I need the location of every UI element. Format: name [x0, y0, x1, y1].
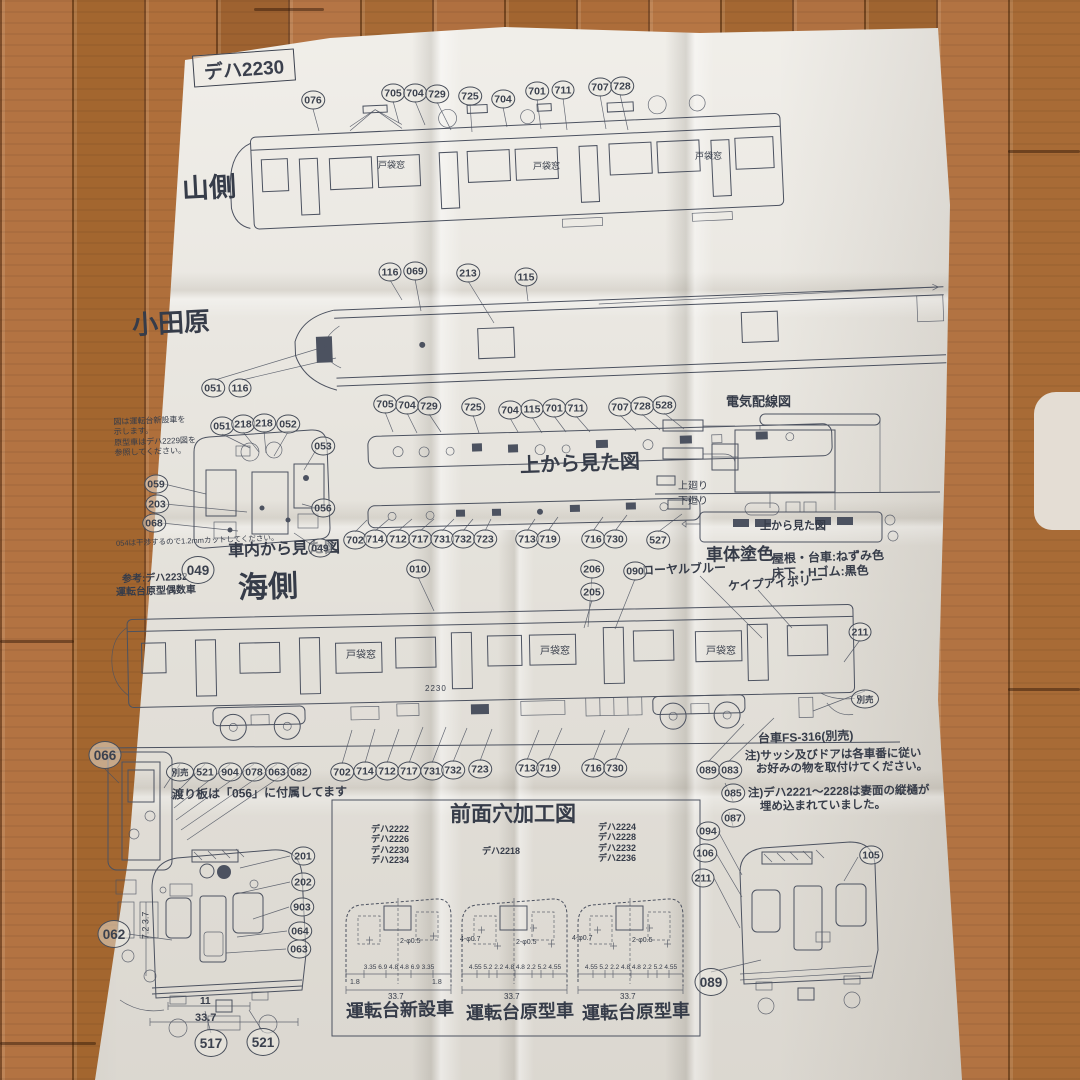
- part-circle: 711: [565, 399, 588, 418]
- part-circle: 066: [89, 741, 122, 769]
- dim-18: 1.8: [432, 979, 442, 987]
- part-circle: 517: [195, 1029, 228, 1057]
- model-item: デハ2234: [371, 855, 409, 865]
- part-circle: 105: [859, 846, 883, 865]
- part-circle: 052: [276, 415, 300, 434]
- part-circle: 203: [145, 495, 169, 514]
- part-circle: 051: [210, 417, 234, 436]
- part-circle: 218: [231, 415, 255, 434]
- watariita-note: 渡り板は「056」に付属してます: [172, 784, 347, 801]
- part-circle: 704: [395, 396, 419, 415]
- part-circle: 731: [420, 762, 444, 781]
- part-circle: 062: [98, 920, 131, 948]
- part-circle: 705: [381, 84, 405, 103]
- sea-side-elevation: [111, 604, 855, 743]
- hole-dim: 4-φ0.7: [460, 936, 481, 944]
- part-circle: 049: [182, 556, 215, 584]
- part-circle: 701: [542, 399, 566, 418]
- part-circle: 521: [193, 763, 217, 782]
- label-lower: 下廻り: [678, 496, 708, 508]
- part-circle: 116: [229, 379, 252, 398]
- part-circle: 707: [588, 78, 612, 97]
- model-item: デハ2228: [598, 832, 636, 842]
- label-door-pocket: 戸袋窓: [706, 646, 736, 658]
- part-circle: 049: [308, 539, 332, 558]
- part-circle: 730: [603, 530, 627, 549]
- label-top-view: 上から見た図: [520, 450, 641, 478]
- dim-18: 1.8: [350, 979, 360, 987]
- model-item: デハ2224: [598, 822, 636, 832]
- part-circle: 728: [610, 77, 634, 96]
- caption-orig-cab2: 運転台原型車: [582, 1001, 691, 1025]
- ref-note-line1: 参考:デハ2232: [122, 572, 188, 586]
- part-circle: 702: [330, 763, 354, 782]
- part-circle: 205: [580, 583, 604, 602]
- bogie-left: [213, 706, 306, 741]
- part-circle: 704: [491, 90, 515, 109]
- dim-row: 4.55 5.2 2.2 4.8 4.8 2.2 5.2 4.55: [462, 964, 568, 972]
- model-list-center: デハ2218: [482, 846, 520, 857]
- label-door-pocket: 戸袋窓: [346, 650, 376, 662]
- part-circle: 089: [696, 761, 720, 780]
- label-royal-blue: ローヤルブルー: [642, 561, 726, 578]
- hole-dim: 2-φ0.5: [632, 937, 653, 945]
- part-circle: 717: [408, 530, 432, 549]
- model-item: デハ2222: [371, 824, 409, 834]
- part-circle: 213: [456, 264, 480, 283]
- part-circle: 090: [623, 562, 647, 581]
- part-circle: 089: [695, 968, 728, 996]
- part-circle: 725: [461, 398, 485, 417]
- hole-dim: 2-φ0.5: [516, 939, 537, 947]
- part-circle: 211: [692, 869, 715, 888]
- part-circle: 903: [290, 898, 314, 917]
- part-circle: 717: [397, 762, 421, 781]
- part-circle: 716: [581, 530, 605, 549]
- part-circle: 521: [247, 1028, 280, 1056]
- sheet-content: デハ2230 山側 小田原 上から見た図 車内から見た図 海側 電気配線図 上廻…: [0, 0, 1080, 1080]
- part-circle: 082: [287, 763, 311, 782]
- part-circle: 528: [652, 396, 676, 415]
- front-outline-orig1: [462, 898, 567, 994]
- note2-l2: 埋め込まれていました。: [760, 799, 886, 815]
- part-circle: 202: [291, 873, 315, 892]
- part-circle: 713: [515, 759, 539, 778]
- label-door-pocket: 戸袋窓: [378, 160, 405, 171]
- label-odawara: 小田原: [131, 306, 211, 341]
- part-circle: 059: [144, 475, 168, 494]
- dim-total: 33.7: [504, 992, 520, 1002]
- front-view-left-drawing: [146, 849, 306, 1037]
- part-circle: 728: [630, 397, 654, 416]
- part-circle: 056: [311, 499, 335, 518]
- dim-row: 3.35 6.9 4.8 4.8 6.9 3.35: [346, 964, 452, 972]
- hole-dim: 2-φ0.5: [400, 938, 421, 946]
- part-circle: 106: [693, 844, 717, 863]
- part-circle: 218: [252, 414, 276, 433]
- part-circle: 713: [515, 530, 539, 549]
- dim-total: 33.7: [620, 992, 636, 1002]
- front-side-dim: 7.2 3.7: [140, 912, 151, 940]
- model-item: デハ2230: [371, 845, 409, 855]
- door-detail-drawing: [108, 752, 172, 1011]
- part-circle: 094: [696, 822, 720, 841]
- part-circle: 719: [536, 759, 560, 778]
- mountain-side-elevation: [227, 87, 784, 242]
- part-circle: 714: [353, 762, 377, 781]
- part-circle: 732: [451, 530, 475, 549]
- underbody-strip-2: [368, 498, 700, 528]
- part-circle: 704: [498, 401, 522, 420]
- model-item: デハ2232: [598, 843, 636, 853]
- part-circle: 725: [458, 87, 482, 106]
- part-circle: 731: [430, 530, 454, 549]
- part-circle: 051: [201, 379, 225, 398]
- part-circle: 732: [441, 761, 465, 780]
- part-circle: 206: [580, 560, 604, 579]
- part-circle: 068: [142, 514, 166, 533]
- part-circle: 115: [515, 268, 538, 287]
- part-circle: 723: [468, 760, 492, 779]
- bogie-right: [653, 695, 746, 730]
- part-circle: 069: [403, 262, 427, 281]
- label-wiring: 電気配線図: [726, 394, 791, 410]
- part-circle: 063: [265, 763, 289, 782]
- part-circle: 078: [242, 763, 266, 782]
- part-circle: 712: [386, 530, 410, 549]
- photo-of-instruction-sheet: デハ2230 山側 小田原 上から見た図 車内から見た図 海側 電気配線図 上廻…: [0, 0, 1080, 1080]
- part-circle: 712: [375, 762, 399, 781]
- part-circle: 085: [721, 784, 745, 803]
- front-outline-orig2: [578, 898, 683, 994]
- part-circle: 716: [581, 759, 605, 778]
- part-circle: 704: [403, 84, 427, 103]
- model-item: デハ2226: [371, 834, 409, 844]
- front-hole-heading: 前面穴加工図: [450, 802, 576, 827]
- caption-orig-cab1: 運転台原型車: [466, 1001, 575, 1025]
- part-circle: 719: [536, 530, 560, 549]
- label-car-number: 2230: [425, 684, 447, 694]
- part-circle: 730: [603, 759, 627, 778]
- part-circle: 723: [473, 530, 497, 549]
- part-circle: 087: [721, 809, 745, 828]
- part-circle: 211: [849, 623, 872, 642]
- part-circle: 904: [218, 763, 242, 782]
- hole-dim: 4-φ0.7: [572, 935, 593, 943]
- part-circle: 201: [291, 847, 315, 866]
- label-door-pocket: 戸袋窓: [533, 161, 560, 172]
- part-circle: 053: [311, 437, 335, 456]
- label-mountain-side: 山側: [181, 171, 237, 206]
- part-circle: 705: [373, 395, 397, 414]
- label-sea-side: 海側: [237, 569, 298, 607]
- part-circle: 729: [425, 85, 449, 104]
- part-circle: 063: [287, 940, 311, 959]
- part-circle: 115: [521, 400, 544, 419]
- label-door-pocket: 戸袋窓: [695, 151, 722, 162]
- caption-new-cab: 運転台新設車: [346, 999, 455, 1023]
- cab-note: 図は運転台新設車を 示します。 原型車はデハ2229図を 参照してください。: [113, 415, 196, 459]
- part-circle: 711: [552, 81, 575, 100]
- cab-interior-view: [194, 430, 330, 548]
- dim-row: 4.55 5.2 2.2 4.8 4.8 2.2 5.2 4.55: [578, 964, 684, 972]
- label-upper: 上廻り: [678, 481, 708, 493]
- part-circle: 010: [406, 560, 430, 579]
- odawara-roof-plan: [294, 284, 947, 392]
- part-circle: 729: [417, 397, 441, 416]
- part-circle: 076: [301, 91, 325, 110]
- front-inner-dim: 11: [200, 996, 211, 1008]
- front-total-dim: 33.7: [195, 1012, 216, 1025]
- part-circle: 527: [646, 531, 670, 550]
- part-circle: 714: [363, 530, 387, 549]
- part-circle: 064: [288, 922, 312, 941]
- model-list-left: デハ2222 デハ2226 デハ2230 デハ2234: [371, 824, 409, 865]
- part-circle-sold-separately: 別売: [166, 763, 194, 782]
- model-item: デハ2236: [598, 853, 636, 863]
- part-circle-sold-separately: 別売: [851, 690, 879, 709]
- front-view-right-drawing: [740, 842, 878, 1014]
- part-circle: 083: [718, 761, 742, 780]
- model-list-right: デハ2224 デハ2228 デハ2232 デハ2236: [598, 822, 636, 863]
- part-circle: 116: [379, 263, 402, 282]
- part-circle: 707: [608, 398, 632, 417]
- part-circle: 701: [525, 82, 549, 101]
- label-wiring-top-view: 上から見た図: [760, 520, 826, 533]
- label-door-pocket: 戸袋窓: [540, 646, 570, 658]
